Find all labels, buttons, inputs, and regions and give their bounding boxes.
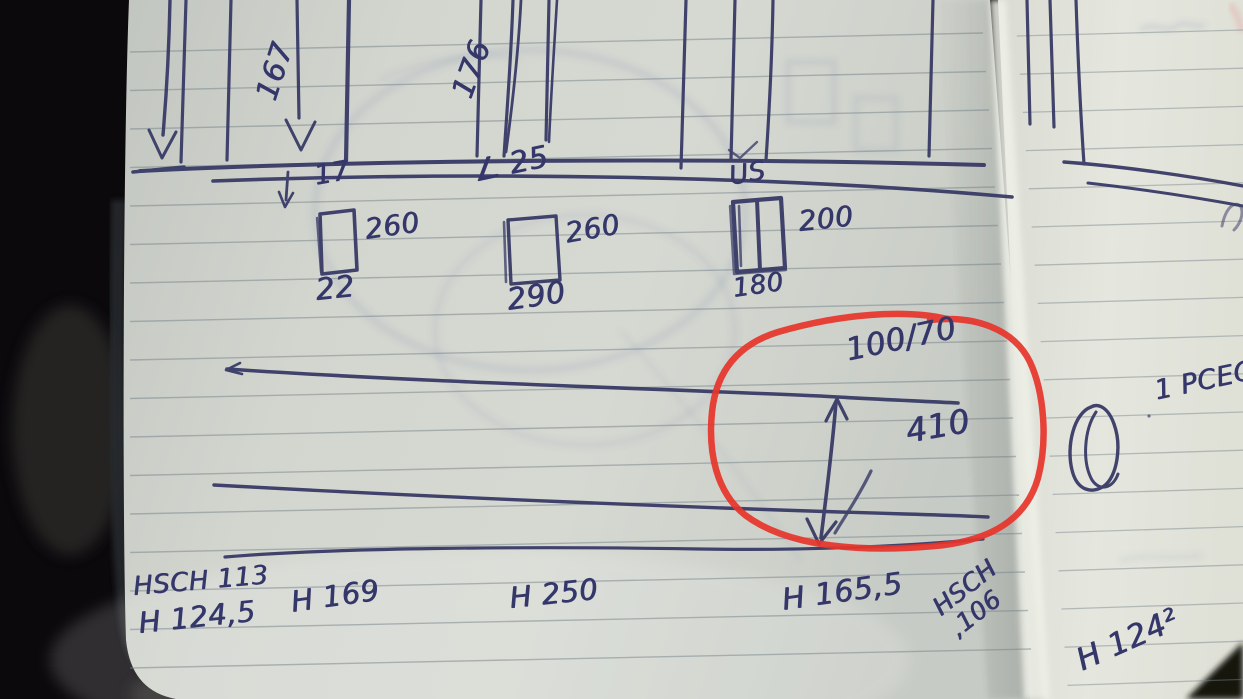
window-1-width: 22: [314, 272, 356, 306]
window-1-size: 260: [363, 208, 421, 243]
notebook-photo: 167 176 17 ∠ 25 US 260 22 260 290 200 18…: [0, 0, 1243, 699]
circled-height-410: 410: [903, 404, 972, 448]
window-2-width: 290: [505, 278, 567, 316]
label-us: US: [727, 158, 768, 190]
window-3-size: 200: [797, 202, 855, 236]
measurement-17: 17: [312, 157, 352, 190]
window-3-width: 180: [731, 269, 785, 302]
